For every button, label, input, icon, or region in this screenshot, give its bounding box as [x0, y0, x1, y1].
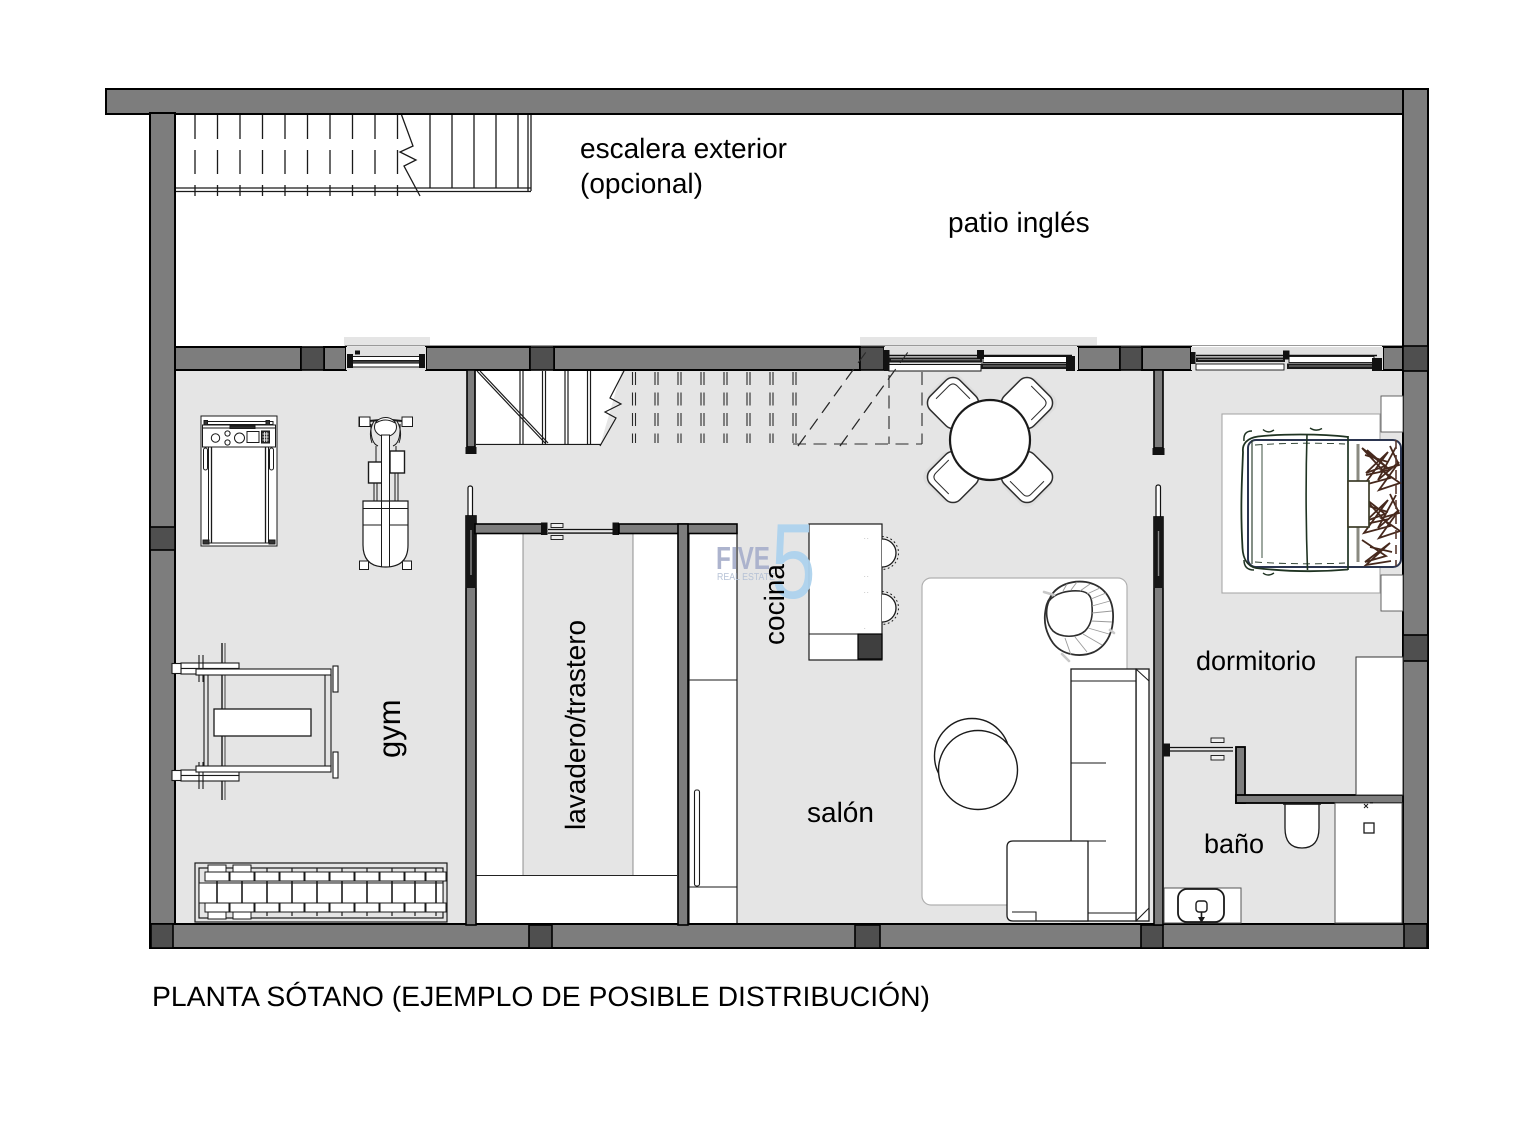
svg-text:baño: baño — [1204, 829, 1264, 859]
svg-text:cocina: cocina — [759, 564, 790, 645]
svg-text:lavadero/trastero: lavadero/trastero — [560, 620, 591, 830]
svg-text:PLANTA SÓTANO (EJEMPLO DE POSI: PLANTA SÓTANO (EJEMPLO DE POSIBLE DISTRI… — [152, 981, 930, 1012]
svg-text:(opcional): (opcional) — [580, 168, 703, 199]
svg-text:salón: salón — [807, 797, 874, 828]
svg-text:· ·: · · — [864, 536, 869, 542]
svg-text:dormitorio: dormitorio — [1196, 646, 1316, 676]
svg-text:patio inglés: patio inglés — [948, 207, 1090, 238]
svg-text:escalera exterior: escalera exterior — [580, 133, 787, 164]
svg-text:· ·: · · — [864, 590, 869, 596]
svg-text:gym: gym — [372, 699, 407, 758]
svg-text:· ·: · · — [864, 574, 869, 580]
